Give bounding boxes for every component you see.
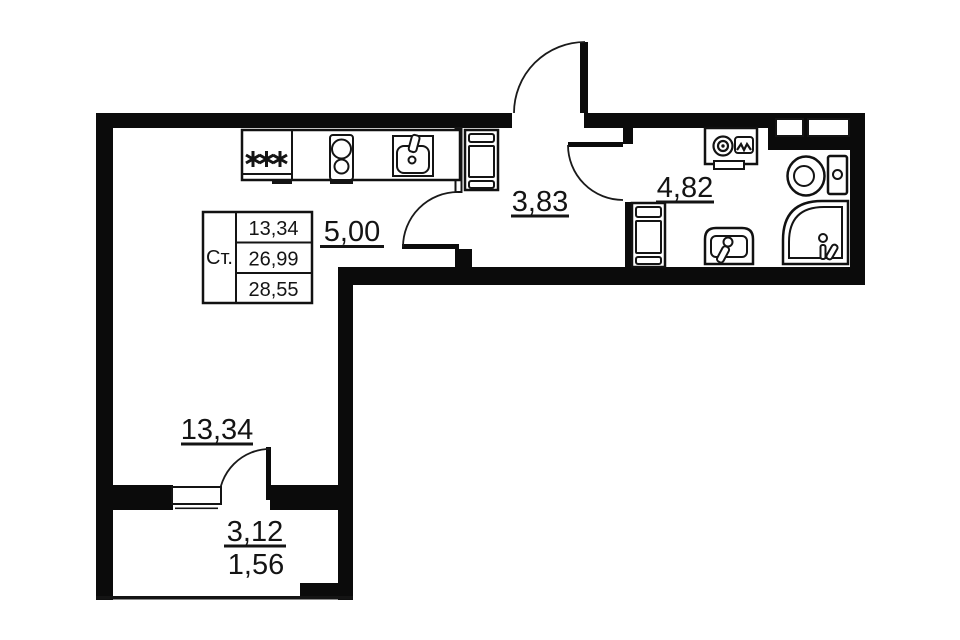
wardrobe-icon [465, 130, 498, 190]
hallway-area-label: 3,83 [512, 186, 568, 218]
washbasin-icon [705, 228, 753, 264]
area-table-value-total-balcony: 28,55 [248, 279, 298, 301]
bathroom-door-leaf [568, 142, 623, 147]
fridge-base-line [242, 173, 292, 175]
entrance-door-leaf [580, 42, 588, 113]
kitchen-sink-icon [393, 134, 433, 176]
wall-bathroom-jamb [623, 128, 633, 144]
stove-icon [330, 135, 353, 180]
kitchen-area-label: 5,00 [324, 216, 380, 248]
counter-divider [291, 130, 293, 180]
floor-plan-canvas: Ст. 13,34 26,99 28,55 5,00 3,83 4,82 13,… [0, 0, 960, 640]
window-frame [172, 487, 221, 504]
wall-column-right [338, 267, 353, 600]
counter-tick [272, 180, 292, 184]
wall-left-outer [96, 113, 113, 600]
window-sill-line [175, 508, 218, 510]
wall-top-mid [584, 113, 633, 128]
kitchen-counter [242, 130, 460, 184]
wall-balcony-right [270, 485, 353, 510]
area-table: Ст. 13,34 26,99 28,55 [203, 212, 312, 303]
washing-machine-icon [705, 128, 757, 169]
wall-top-right [633, 113, 772, 128]
wall-balcony-left [96, 485, 173, 510]
refrigerator-icon [246, 151, 287, 167]
floor-plan: Ст. 13,34 26,99 28,55 5,00 3,83 4,82 13,… [0, 0, 960, 640]
balcony-parapet-line [96, 596, 353, 600]
kitchen-door [402, 192, 459, 249]
area-table-row-label: Ст. [206, 247, 233, 269]
bathroom-door [568, 142, 623, 200]
balcony-door [219, 447, 271, 500]
balcony-door-leaf [266, 447, 271, 500]
vent-shaft-icon [776, 119, 803, 136]
bathroom-area-label: 4,82 [657, 172, 713, 204]
balcony-reduced-area-label: 1,56 [228, 549, 284, 581]
window-sill-line [175, 503, 218, 505]
bath-cabinet-icon [632, 203, 665, 267]
balcony-door-swing-arc [219, 449, 270, 500]
entrance-door-swing-arc [514, 42, 585, 113]
vent-shaft-icon [808, 119, 849, 136]
wall-kitchen-door-stub [455, 249, 472, 268]
entrance-door [514, 42, 588, 113]
living-room-area-label: 13,34 [181, 414, 254, 446]
shower-tray [783, 201, 848, 264]
area-table-value-living: 13,34 [248, 218, 298, 240]
wall-right-outer [850, 113, 865, 285]
area-table-value-total: 26,99 [248, 249, 298, 271]
wall-hall-living-divider [338, 267, 865, 285]
kitchen-door-leaf [402, 244, 459, 249]
toilet-icon [788, 156, 848, 196]
shower-icon [783, 201, 848, 264]
balcony-window [172, 487, 221, 509]
balcony-area-label: 3,12 [227, 516, 283, 548]
washing-machine-tab [714, 161, 744, 169]
toilet-tank [828, 156, 847, 194]
kitchen-door-swing-arc [403, 192, 458, 247]
bathroom-door-swing-arc [568, 145, 623, 200]
wall-top-kitchen [96, 113, 512, 128]
